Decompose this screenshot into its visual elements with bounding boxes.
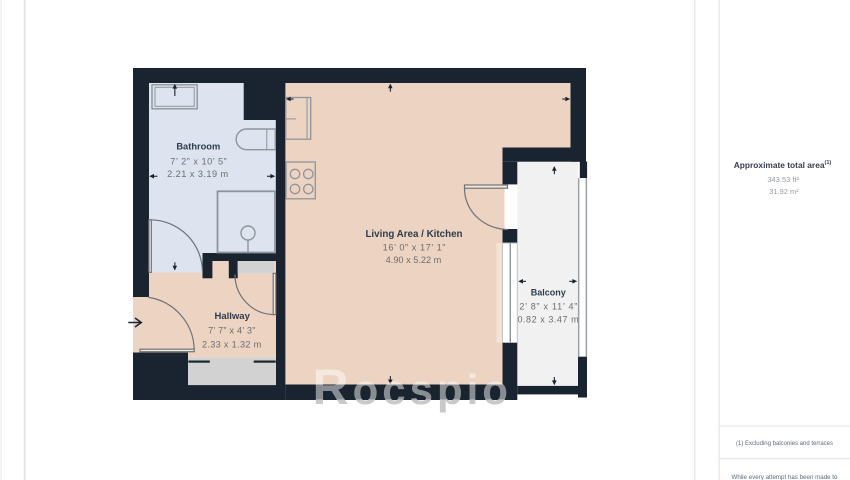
svg-text:7’ 2” x 10’ 5”: 7’ 2” x 10’ 5”	[170, 156, 227, 166]
svg-text:Living Area / Kitchen: Living Area / Kitchen	[365, 229, 462, 240]
svg-text:(1) Excluding balconies and te: (1) Excluding balconies and terraces	[736, 441, 833, 447]
svg-text:Balcony: Balcony	[531, 287, 566, 297]
svg-text:While every attempt has been m: While every attempt has been made to	[732, 474, 838, 480]
svg-text:31.92 m²: 31.92 m²	[769, 187, 799, 196]
svg-text:Hallway: Hallway	[215, 311, 251, 322]
svg-text:16’ 0” x 17’ 1”: 16’ 0” x 17’ 1”	[383, 243, 446, 253]
svg-text:2.21 x 3.19 m: 2.21 x 3.19 m	[167, 169, 229, 179]
svg-text:Approximate total area(1): Approximate total area(1)	[734, 160, 832, 170]
svg-text:2.33 x 1.32 m: 2.33 x 1.32 m	[202, 340, 262, 350]
svg-text:7’ 7” x 4’ 3”: 7’ 7” x 4’ 3”	[208, 326, 255, 336]
svg-text:Bathroom: Bathroom	[176, 142, 220, 152]
svg-text:4.90 x 5.22 m: 4.90 x 5.22 m	[386, 255, 442, 265]
svg-text:0.82 x 3.47 m: 0.82 x 3.47 m	[517, 315, 579, 325]
svg-text:343.53 ft²: 343.53 ft²	[767, 175, 799, 184]
svg-text:2’ 8” x 11’ 4”: 2’ 8” x 11’ 4”	[519, 301, 578, 311]
